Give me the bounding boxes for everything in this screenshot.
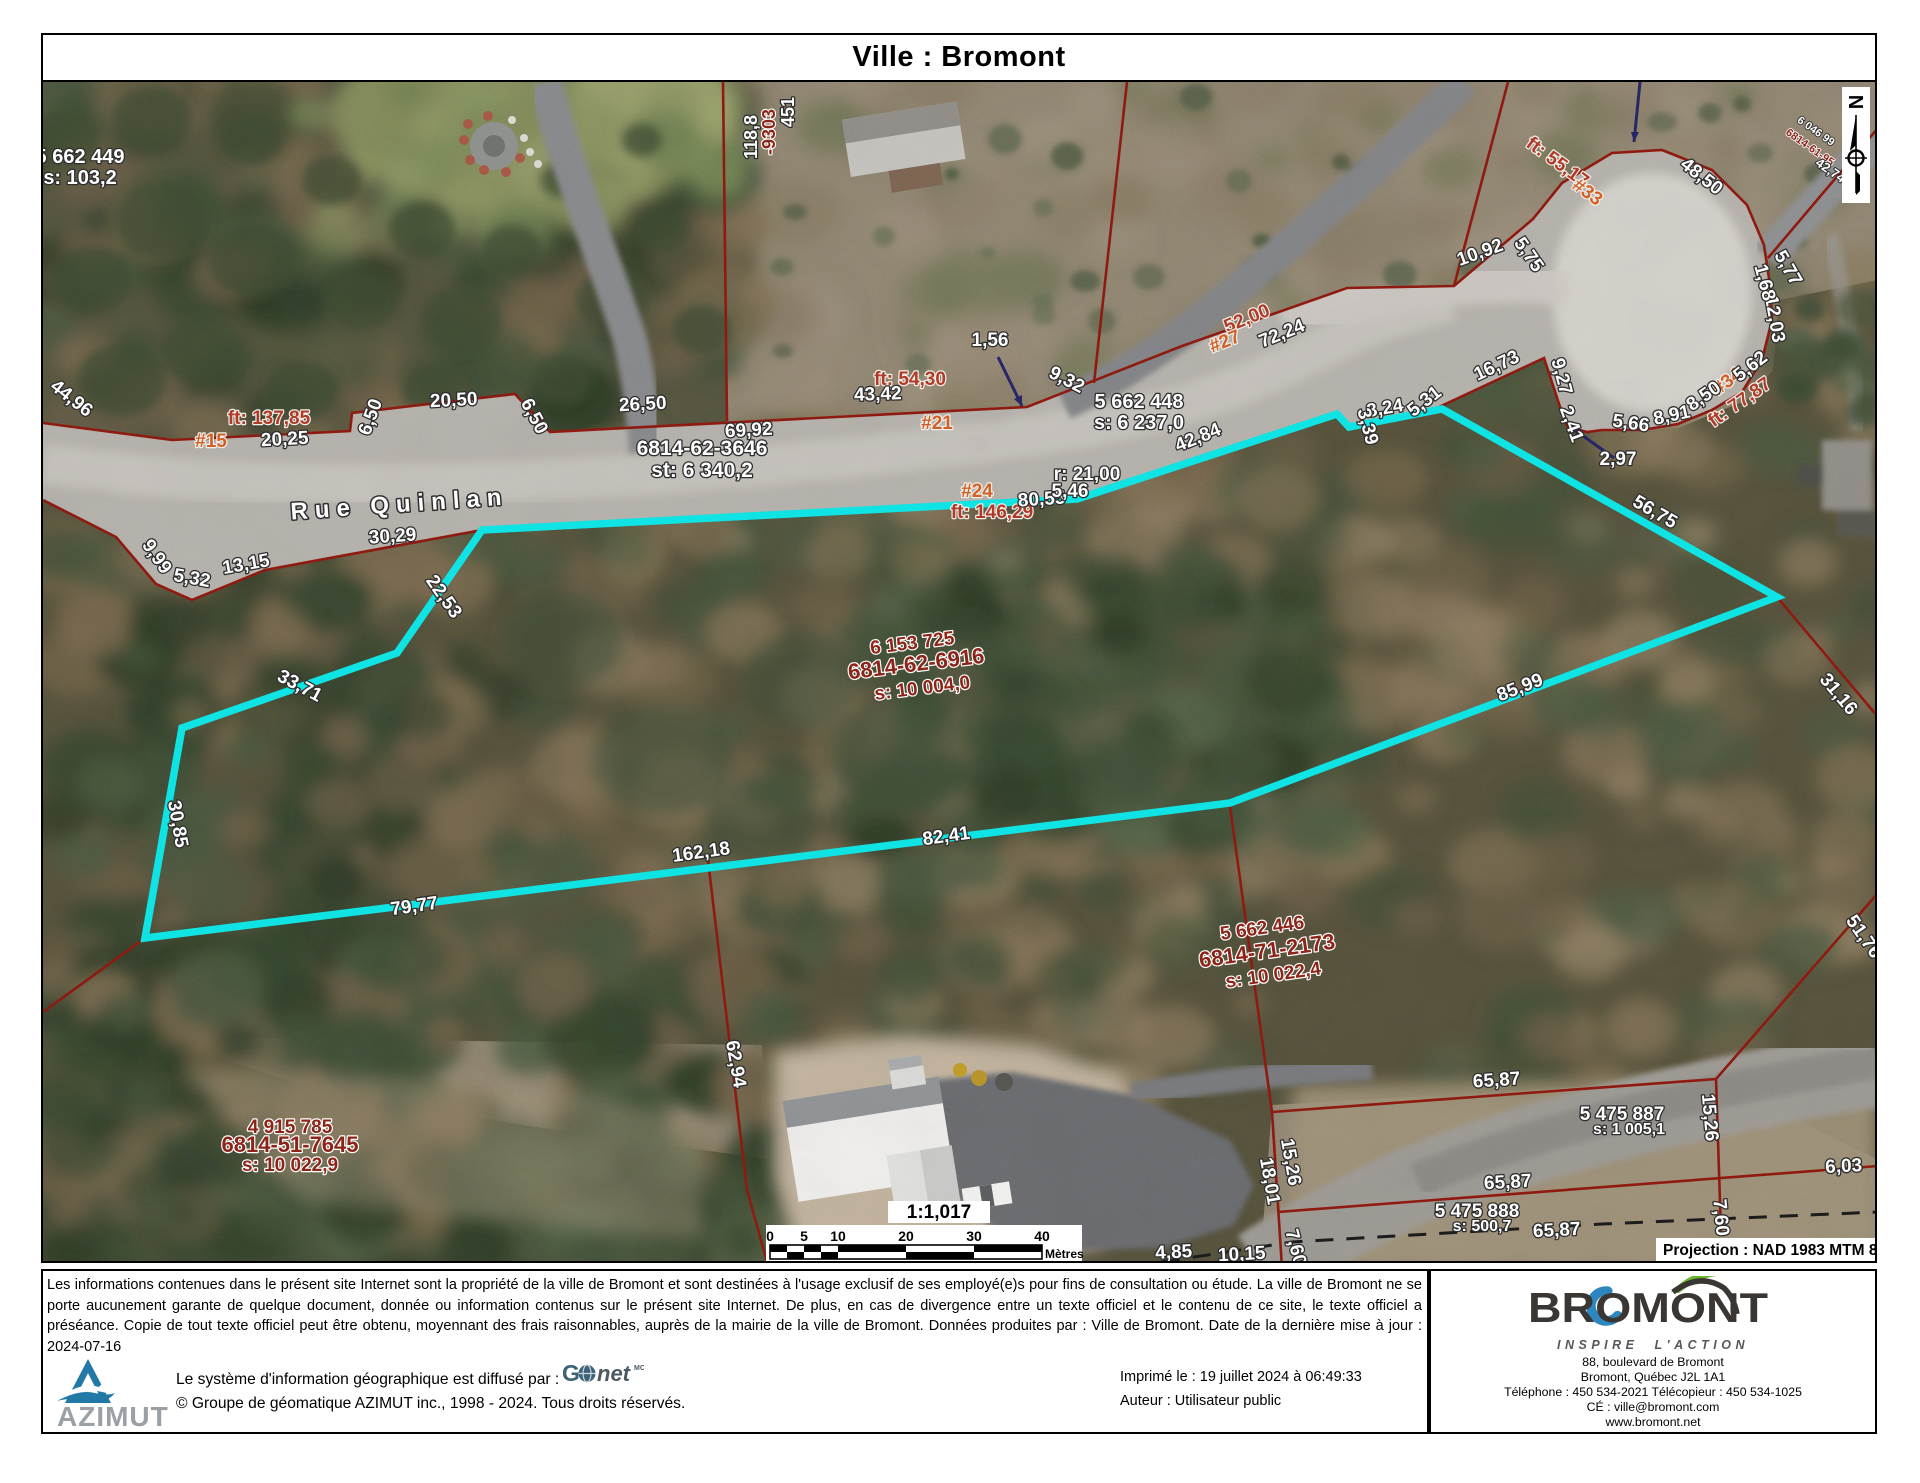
svg-text:-9303: -9303	[759, 109, 779, 155]
svg-text:5 662 449: 5 662 449	[43, 146, 124, 168]
svg-text:#21: #21	[921, 413, 953, 434]
svg-text:N: N	[1844, 95, 1866, 109]
svg-text:#15: #15	[195, 431, 227, 452]
svg-text:20: 20	[898, 1228, 914, 1244]
svg-text:2,97: 2,97	[1600, 449, 1637, 470]
svg-text:65,87: 65,87	[1532, 1219, 1581, 1242]
svg-text:s: 10 022,9: s: 10 022,9	[242, 1155, 338, 1176]
svg-text:0: 0	[766, 1228, 774, 1244]
svg-text:Projection : NAD 1983 MTM 8: Projection : NAD 1983 MTM 8	[1663, 1242, 1877, 1259]
svg-text:5,46: 5,46	[1052, 481, 1089, 502]
svg-text:1,56: 1,56	[972, 330, 1009, 351]
svg-text:AZIMUT: AZIMUT	[57, 1401, 169, 1432]
svg-text:s: 6 237,0: s: 6 237,0	[1094, 412, 1184, 434]
svg-text:7,60: 7,60	[1708, 1198, 1732, 1237]
svg-text:451: 451	[778, 97, 798, 127]
svg-text:20,50: 20,50	[429, 389, 478, 412]
svg-text:st: 6 340,2: st: 6 340,2	[651, 459, 753, 482]
svg-text:BROMONT: BROMONT	[1528, 1284, 1768, 1331]
svg-text:65,87: 65,87	[1472, 1068, 1521, 1092]
svg-text:43,42: 43,42	[854, 383, 902, 406]
svg-text:G: G	[562, 1361, 580, 1386]
svg-text:s: 500,7: s: 500,7	[1453, 1218, 1512, 1235]
svg-text:30,29: 30,29	[368, 524, 417, 548]
svg-text:6814-51-7645: 6814-51-7645	[221, 1132, 358, 1157]
svg-text:15,26: 15,26	[1697, 1093, 1722, 1142]
svg-text:4,85: 4,85	[1155, 1241, 1193, 1263]
svg-text:10: 10	[830, 1228, 846, 1244]
svg-text:1:1,017: 1:1,017	[907, 1202, 971, 1223]
svg-text:118,8: 118,8	[741, 115, 761, 159]
svg-text:5 662 448: 5 662 448	[1095, 391, 1184, 413]
svg-text:6,03: 6,03	[1825, 1155, 1863, 1178]
svg-text:65,87: 65,87	[1483, 1171, 1532, 1194]
svg-text:Mètres: Mètres	[1045, 1247, 1084, 1261]
svg-text:40: 40	[1034, 1228, 1050, 1244]
svg-text:69,92: 69,92	[724, 419, 773, 442]
svg-text:#24: #24	[961, 481, 993, 502]
svg-text:5: 5	[800, 1228, 808, 1244]
svg-text:net: net	[597, 1361, 632, 1386]
svg-text:20,25: 20,25	[260, 428, 309, 451]
svg-text:10,15: 10,15	[1217, 1243, 1266, 1263]
svg-text:s: 1 005,1: s: 1 005,1	[1593, 1121, 1665, 1138]
svg-text:30: 30	[966, 1228, 982, 1244]
svg-text:ft: 137,85: ft: 137,85	[228, 408, 311, 429]
svg-text:26,50: 26,50	[618, 393, 667, 416]
svg-text:s: 103,2: s: 103,2	[43, 167, 116, 189]
svg-text:MC: MC	[634, 1365, 644, 1372]
